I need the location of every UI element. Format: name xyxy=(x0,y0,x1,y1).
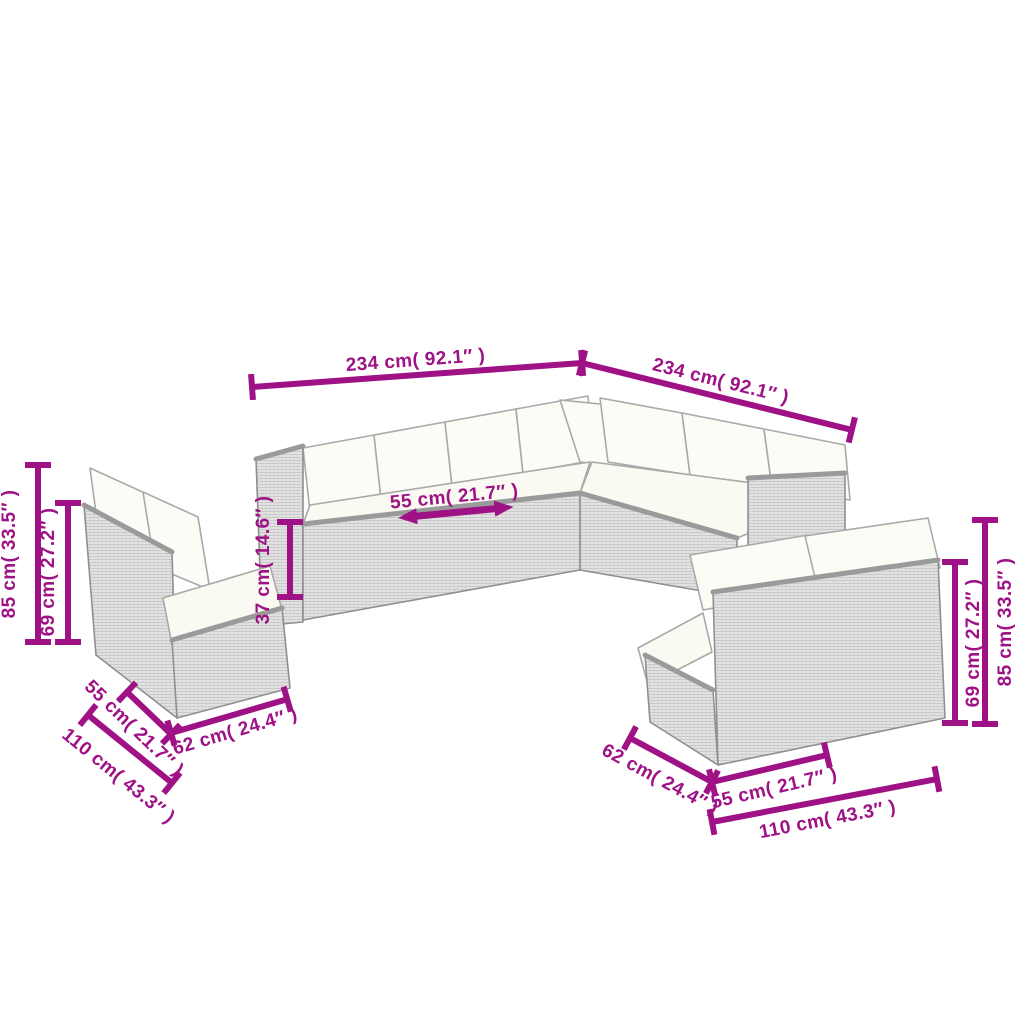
furniture-dimension-diagram: 234 cm( 92.1″ ) 234 cm( 92.1″ ) 55 cm( 2… xyxy=(0,0,1024,1024)
back-cushion xyxy=(600,398,690,475)
dimension-right-total-height-label: 85 cm( 33.5″ ) xyxy=(995,558,1016,687)
product-dimension-page: 234 cm( 92.1″ ) 234 cm( 92.1″ ) 55 cm( 2… xyxy=(0,0,1024,1024)
dimension-right-total-width-label: 110 cm( 43.3″ ) xyxy=(758,796,898,843)
dimension-seat-height-label: 37 cm( 14.6″ ) xyxy=(253,496,274,625)
dimension-left-back-height-label: 69 cm( 27.2″ ) xyxy=(38,508,59,637)
dimension-corner-top-width: 234 cm( 92.1″ ) xyxy=(250,338,583,400)
backrest-panel xyxy=(713,560,945,765)
dimension-left-total-height-label: 85 cm( 33.5″ ) xyxy=(0,490,20,619)
dimension-right-back-height-label: 69 cm( 27.2″ ) xyxy=(963,579,984,708)
dimension-left-back-height: 69 cm( 27.2″ ) xyxy=(38,503,81,642)
dimension-right-seat-width-label: 55 cm( 21.7″ ) xyxy=(709,764,839,814)
dimension-right-back-height: 69 cm( 27.2″ ) xyxy=(942,562,984,723)
